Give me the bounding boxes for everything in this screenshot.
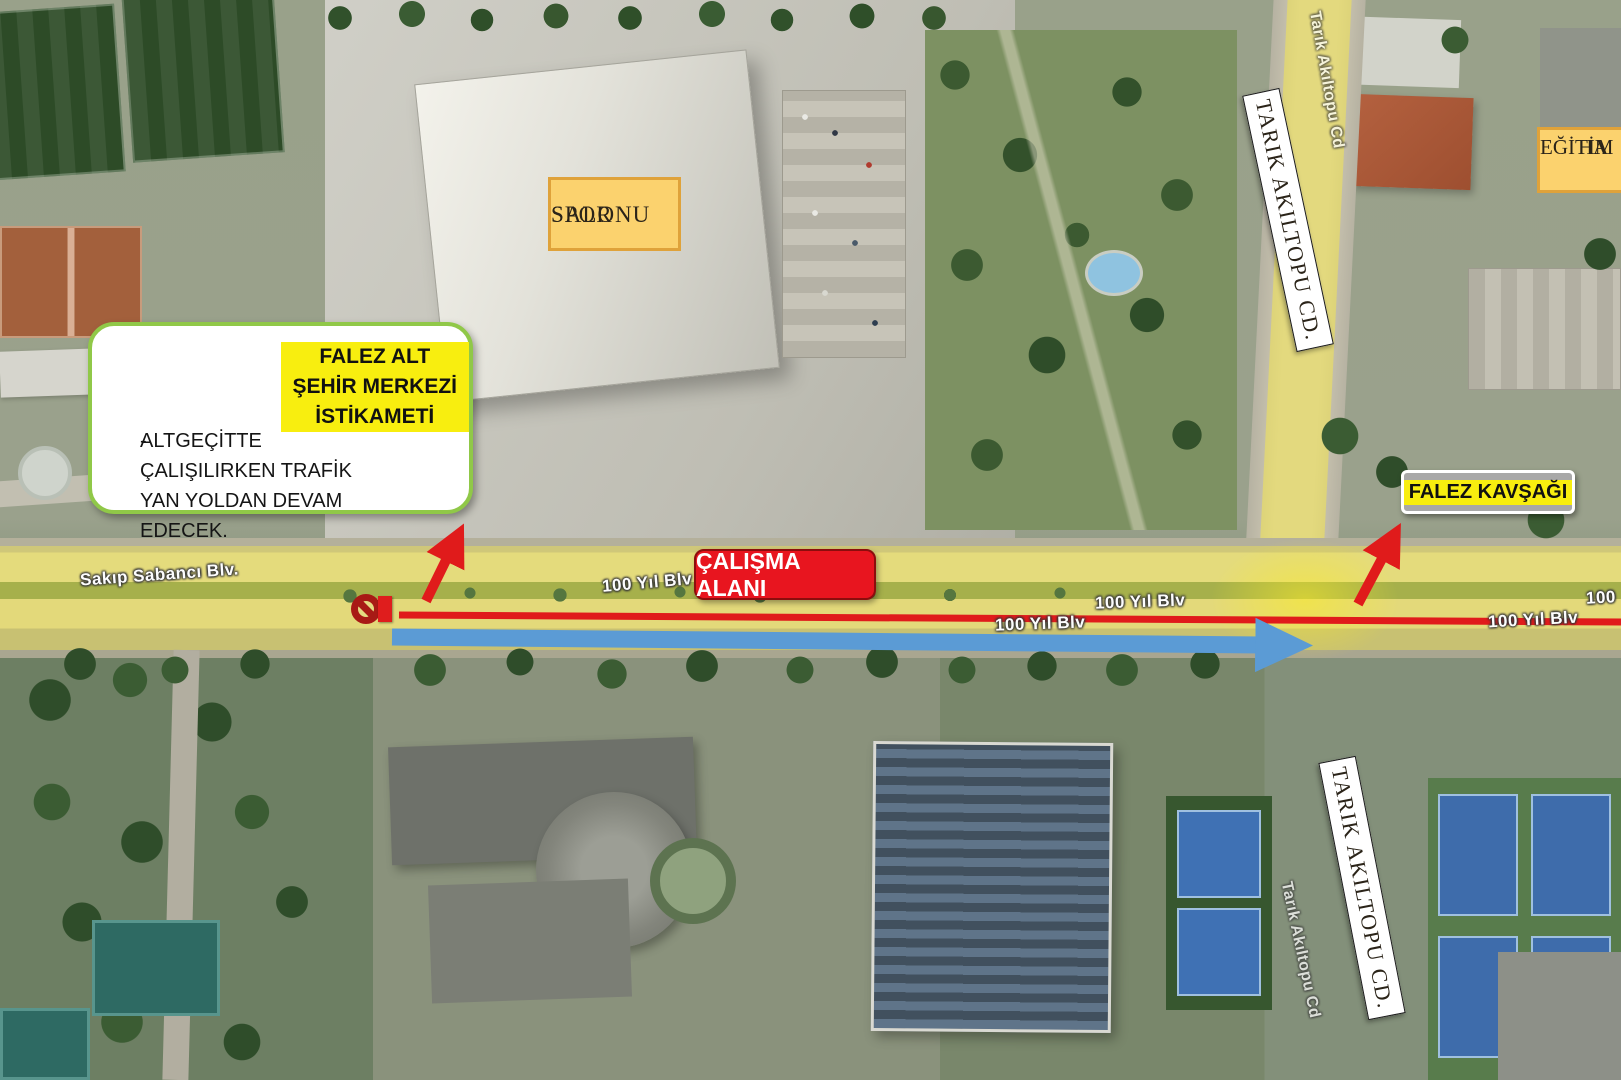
street-label-100-yil-2: 100 Yıl Blv [1095,590,1186,613]
traffic-plan-map: Sakıp Sabancı Blv. 100 Yıl Blv 100 Yıl B… [0,0,1621,1080]
egitim-label: EĞİTİM HA [1537,127,1621,193]
road-closure-marker [378,596,392,622]
callout-bullet-text: ALTGEÇİTTE ÇALIŞILIRKEN TRAFİK YAN YOLDA… [140,426,396,546]
falez-junction-text: FALEZ KAVŞAĞI [1404,480,1573,505]
street-label-100-partial: 100 [1585,587,1616,609]
info-callout: FALEZ ALT GEÇİDİ ŞEHİR MERKEZİ İSTİKAMET… [88,322,473,514]
diversion-arrow-left [426,554,449,601]
falez-junction-badge: FALEZ KAVŞAĞI [1401,470,1575,514]
callout-title-line2: ŞEHİR MERKEZİ İSTİKAMETİ [281,372,470,432]
callout-title: FALEZ ALT GEÇİDİ ŞEHİR MERKEZİ İSTİKAMET… [92,342,469,372]
diversion-arrow-right [1358,553,1385,604]
egitim-line2: HA [1540,133,1608,162]
no-entry-slash [355,598,377,620]
street-label-100-yil-3: 100 Yıl Blv [995,612,1086,635]
spor-salonu-line2: SALONU [551,198,650,231]
no-entry-icon [351,594,381,624]
spor-salonu-label: SPOR SALONU [548,177,681,251]
work-area-badge: ÇALIŞMA ALANI [694,549,876,600]
traffic-flow-arrow-blue [392,637,1262,645]
